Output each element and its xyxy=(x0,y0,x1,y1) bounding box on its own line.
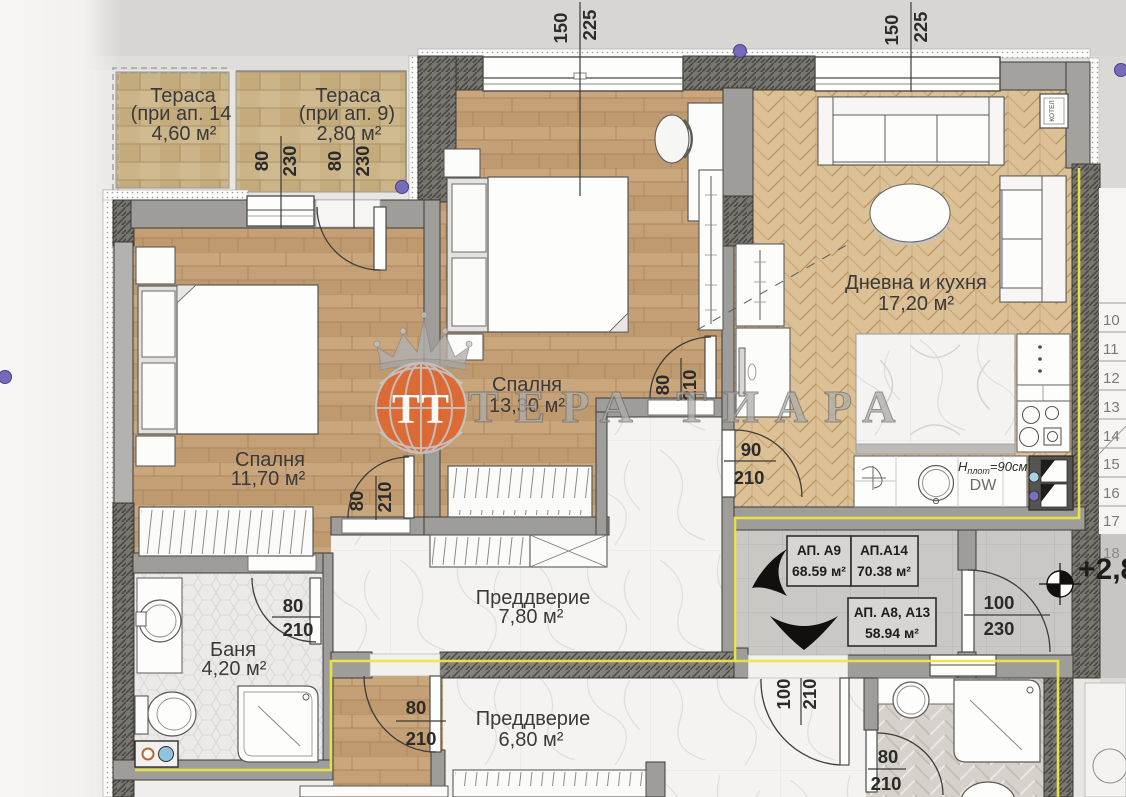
svg-text:100: 100 xyxy=(984,592,1015,613)
svg-text:58.94 м²: 58.94 м² xyxy=(865,625,919,641)
svg-text:210: 210 xyxy=(283,619,314,640)
svg-text:Преддверие: Преддверие xyxy=(476,708,590,730)
svg-text:80: 80 xyxy=(283,595,304,616)
svg-text:11: 11 xyxy=(1103,341,1119,358)
svg-text:68.59 м²: 68.59 м² xyxy=(792,563,846,579)
svg-text:210: 210 xyxy=(374,482,395,513)
svg-text:ТЕРА ТИАРА: ТЕРА ТИАРА xyxy=(468,381,911,432)
svg-text:КОТЕЛ: КОТЕЛ xyxy=(1049,100,1056,121)
svg-text:10: 10 xyxy=(1103,312,1120,329)
svg-text:100: 100 xyxy=(773,679,794,710)
svg-text:80: 80 xyxy=(406,697,427,718)
svg-text:80: 80 xyxy=(251,151,272,172)
svg-text:2,80 м²: 2,80 м² xyxy=(317,123,382,145)
svg-text:(при ап. 9): (при ап. 9) xyxy=(299,103,395,125)
svg-text:230: 230 xyxy=(984,618,1015,639)
svg-text:225: 225 xyxy=(910,12,931,43)
svg-text:(при ап. 14: (при ап. 14 xyxy=(131,103,232,125)
svg-text:225: 225 xyxy=(579,10,600,41)
svg-text:150: 150 xyxy=(881,15,902,46)
svg-text:210: 210 xyxy=(871,773,902,794)
svg-text:+2,8: +2,8 xyxy=(1078,553,1126,586)
svg-text:13: 13 xyxy=(1103,399,1120,416)
svg-text:150: 150 xyxy=(550,13,571,44)
svg-text:АП. А8, А13: АП. А8, А13 xyxy=(854,605,931,620)
svg-text:230: 230 xyxy=(279,146,300,177)
svg-text:210: 210 xyxy=(734,467,765,488)
svg-text:АП.А14: АП.А14 xyxy=(860,543,908,558)
svg-text:Дневна и кухня: Дневна и кухня xyxy=(845,272,987,294)
svg-text:14: 14 xyxy=(1103,428,1120,445)
svg-text:17: 17 xyxy=(1103,513,1120,530)
svg-text:4,60 м²: 4,60 м² xyxy=(152,123,217,145)
svg-text:6,80 м²: 6,80 м² xyxy=(499,729,564,751)
svg-text:12: 12 xyxy=(1103,370,1120,387)
svg-text:80: 80 xyxy=(346,491,367,512)
svg-text:17,20 м²: 17,20 м² xyxy=(878,293,954,315)
svg-text:80: 80 xyxy=(324,151,345,172)
svg-text:DW: DW xyxy=(970,477,998,494)
svg-text:ТТ: ТТ xyxy=(392,387,450,433)
svg-text:11,70 м²: 11,70 м² xyxy=(231,468,306,490)
svg-text:АП. А9: АП. А9 xyxy=(797,543,841,558)
svg-text:70.38 м²: 70.38 м² xyxy=(857,563,911,579)
svg-text:80: 80 xyxy=(878,746,899,767)
svg-text:210: 210 xyxy=(799,679,820,710)
svg-text:15: 15 xyxy=(1103,456,1120,473)
svg-text:90: 90 xyxy=(741,439,762,460)
svg-text:16: 16 xyxy=(1103,485,1120,502)
svg-text:7,80 м²: 7,80 м² xyxy=(499,606,564,628)
svg-text:4,20 м²: 4,20 м² xyxy=(202,658,267,680)
svg-text:230: 230 xyxy=(352,146,373,177)
svg-text:210: 210 xyxy=(406,728,437,749)
